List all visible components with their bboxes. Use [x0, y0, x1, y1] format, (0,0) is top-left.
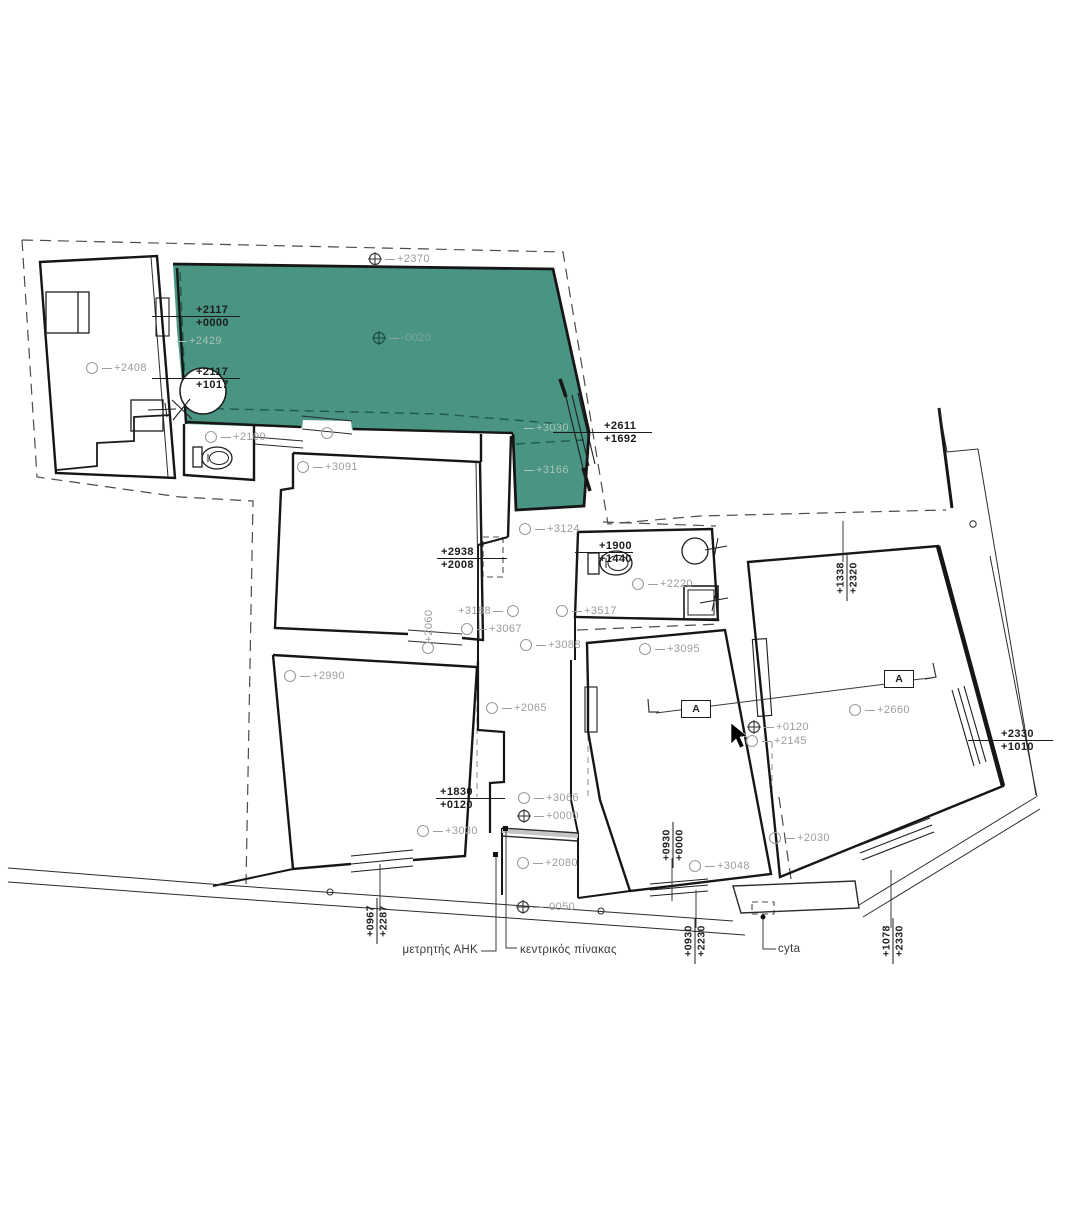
elevation-pair-+2938-+2008: +2938+2008: [437, 546, 507, 571]
section-marker-A: A: [681, 700, 711, 718]
spot-elevation-text: +3124: [547, 523, 580, 535]
rotated-label-+2060: +2060: [423, 610, 435, 643]
elevation-pair-+2117-+0000: +2117+0000: [152, 304, 240, 329]
toilet-1-bowl: [202, 447, 232, 469]
spot-elevation-text: +2408: [114, 362, 147, 374]
spot-elevation-+3095: +3095: [637, 641, 700, 657]
spot-elevation-+2408: +2408: [84, 360, 147, 376]
circle-marker-icon: [295, 459, 311, 475]
spot-elevation-text: +3517: [584, 605, 617, 617]
circle-marker-icon: [516, 790, 532, 806]
leader-dash: [534, 816, 544, 817]
leader-dash: [177, 341, 187, 342]
spot-elevation-+3188: +3188: [425, 603, 521, 619]
leader-dash: [385, 259, 395, 260]
leader-dash: [300, 676, 310, 677]
spot-elevation-text: +3095: [667, 643, 700, 655]
window-elevation-right: +2320: [848, 562, 860, 594]
leader-dash: [534, 798, 544, 799]
elevation-lower-value: +0000: [152, 317, 240, 329]
sink-basin: [682, 538, 708, 564]
datum-target-icon: [516, 808, 532, 824]
spot-elevation-+3091: +3091: [295, 459, 358, 475]
window-elevation-pair-+0000-+0930: +0930+0000: [661, 822, 686, 868]
spot-elevation-text: +3066: [546, 792, 579, 804]
elevation-upper-value: +2117: [152, 304, 240, 316]
elevation-upper-value: +2938: [437, 546, 507, 558]
elevation-upper-value: +2330: [968, 728, 1053, 740]
leader-dash: [313, 467, 323, 468]
leader-dash: [785, 838, 795, 839]
window-elevation-pair-+2230-+0930: +0930+2230: [683, 918, 708, 964]
circle-marker-icon: [415, 823, 431, 839]
window-elevation-pair-+2330-+1078: +1078+2330: [881, 918, 906, 964]
spot-elevation--0020: -0020: [371, 330, 431, 346]
leader-dash: [102, 368, 112, 369]
callout-μετρητής ΑΗΚ: μετρητής ΑΗΚ: [402, 944, 478, 956]
circle-marker-icon: [554, 603, 570, 619]
floor-plan-canvas: +2408+2100+3091+2370-0020+3124+3188+3067…: [0, 0, 1080, 1226]
elevation-lower-value: +1692: [553, 433, 652, 445]
leader-dash: [865, 710, 875, 711]
window-elevation-left: +0930: [661, 829, 673, 861]
window-elevation-right: +0000: [674, 829, 686, 861]
spot-elevation-+3066: +3066: [516, 790, 579, 806]
spot-elevation-text: +3188: [458, 605, 491, 617]
leader-dash: [433, 831, 443, 832]
elevation-upper-value: +1830: [436, 786, 505, 798]
spot-elevation-text: +2220: [660, 578, 693, 590]
corridor-dashed-lines: [477, 662, 772, 800]
circle-marker-icon: [518, 637, 534, 653]
spot-elevation-text: +3166: [536, 464, 569, 476]
leader-dash: [764, 727, 774, 728]
spot-elevation-text: +2370: [397, 253, 430, 265]
spot-elevation-text: +3067: [489, 623, 522, 635]
circle-marker-icon: [203, 429, 219, 445]
elevation-pair-+2117-+1017: +2117+1017: [152, 366, 240, 391]
leader-dash: [477, 629, 487, 630]
window-elevation-pair-+2287-+0967: +0967+2287: [365, 898, 390, 944]
circle-marker-icon: [84, 360, 100, 376]
spot-elevation-+3517: +3517: [554, 603, 617, 619]
elevation-upper-value: +2611: [553, 420, 652, 432]
spot-elevation--0050: -0050: [515, 899, 575, 915]
datum-target-icon: [367, 251, 383, 267]
window-elevation-left: +0930: [683, 925, 695, 957]
toilet-1-tank: [193, 447, 202, 467]
circle-marker-icon: [505, 603, 521, 619]
spot-elevation-text: +2080: [545, 857, 578, 869]
spot-elevation-+3166: +3166: [522, 462, 569, 478]
leader-dash: [536, 645, 546, 646]
circle-marker-icon: [637, 641, 653, 657]
leader-dash: [389, 338, 399, 339]
window-elevation-right: +2330: [894, 925, 906, 957]
circle-marker-icon: [515, 855, 531, 871]
spot-elevation-+3030: +3030: [415, 823, 478, 839]
circle-marker-icon: [767, 830, 783, 846]
elevation-lower-value: +1010: [968, 741, 1053, 753]
datum-target-icon: [371, 330, 387, 346]
spot-elevation-text: +3088: [548, 639, 581, 651]
spot-elevation-text: +0000: [546, 810, 579, 822]
spot-elevation-text: +0120: [776, 721, 809, 733]
window-elevation-left: +1078: [881, 925, 893, 957]
datum-target-icon: [515, 899, 531, 915]
elevation-lower-value: +2008: [437, 559, 507, 571]
callout-κεντρικός πίνακας: κεντρικός πίνακας: [520, 944, 617, 956]
spot-elevation-+0000: +0000: [516, 808, 579, 824]
spot-elevation-text: -0020: [401, 332, 431, 344]
spot-elevation-+2145: +2145: [744, 733, 807, 749]
spot-elevation-text: +2100: [233, 431, 266, 443]
leader-dash: [533, 863, 543, 864]
spot-elevation-+2660: +2660: [847, 702, 910, 718]
spot-elevation-+3124: +3124: [517, 521, 580, 537]
spot-elevation-text: +2065: [514, 702, 547, 714]
spot-elevation-text: +3091: [325, 461, 358, 473]
elevation-pair-+1900-+1440: +1900+1440: [575, 540, 633, 565]
spot-elevation-text: -0050: [545, 901, 575, 913]
spot-elevation-+3067: +3067: [459, 621, 522, 637]
spot-elevation-text: +2145: [774, 735, 807, 747]
leader-dash: [572, 611, 582, 612]
spot-elevation-text: +2030: [797, 832, 830, 844]
elevation-lower-value: +1440: [575, 553, 633, 565]
leader-dash: [648, 584, 658, 585]
leader-dash: [705, 866, 715, 867]
leader-dash: [762, 741, 772, 742]
step-platform: [57, 415, 171, 470]
circle-marker-icon: [484, 700, 500, 716]
spot-elevation-+3088: +3088: [518, 637, 581, 653]
leader-dash: [524, 470, 534, 471]
spot-elevation-+2220: +2220: [630, 576, 693, 592]
circle-marker-icon: [459, 621, 475, 637]
window-elevation-left: +0967: [365, 905, 377, 937]
spot-elevation-+3048: +3048: [687, 858, 750, 874]
elevation-pair-+1830-+0120: +1830+0120: [436, 786, 505, 811]
spot-elevation-text: +2990: [312, 670, 345, 682]
leader-dash: [535, 529, 545, 530]
spot-elevation-+2065: +2065: [484, 700, 547, 716]
circle-marker-icon: [744, 733, 760, 749]
elevation-pair-+2611-+1692: +2611+1692: [553, 420, 652, 445]
spot-elevation-+2990: +2990: [282, 668, 345, 684]
window-elevation-right: +2230: [696, 925, 708, 957]
leader-dash: [533, 907, 543, 908]
circle-marker-icon: [687, 858, 703, 874]
spot-elevation-+2080: +2080: [515, 855, 578, 871]
spot-elevation-+2030: +2030: [767, 830, 830, 846]
spot-elevation-+2100: +2100: [203, 429, 266, 445]
callout-cyta: cyta: [778, 943, 800, 955]
window-elevation-right: +2287: [378, 905, 390, 937]
spot-elevation-text: +3030: [445, 825, 478, 837]
spot-elevation-text: +2660: [877, 704, 910, 716]
leader-dash: [221, 437, 231, 438]
leader-dash: [655, 649, 665, 650]
circle-marker-icon: [847, 702, 863, 718]
circle-marker-icon: [282, 668, 298, 684]
leader-dash: [502, 708, 512, 709]
elevation-pair-+2330-+1010: +2330+1010: [968, 728, 1053, 753]
spot-elevation-+2370: +2370: [367, 251, 430, 267]
spot-elevation-text: +3048: [717, 860, 750, 872]
plan-geometry: [0, 0, 1080, 1226]
leader-dash: [493, 611, 503, 612]
spot-elevation-text: +2429: [189, 335, 222, 347]
spot-elevation-+2429: +2429: [175, 333, 222, 349]
elevation-lower-value: +1017: [152, 379, 240, 391]
elevation-upper-value: +1900: [575, 540, 633, 552]
window-elevation-pair-+2320-+1338: +1338+2320: [835, 555, 860, 601]
circle-marker-icon: [517, 521, 533, 537]
elevation-upper-value: +2117: [152, 366, 240, 378]
circle-marker-icon: [630, 576, 646, 592]
window-elevation-left: +1338: [835, 562, 847, 594]
elevation-lower-value: +0120: [436, 799, 505, 811]
furniture-rect: [46, 292, 89, 333]
leader-dash: [524, 428, 534, 429]
section-marker-A: A: [884, 670, 914, 688]
